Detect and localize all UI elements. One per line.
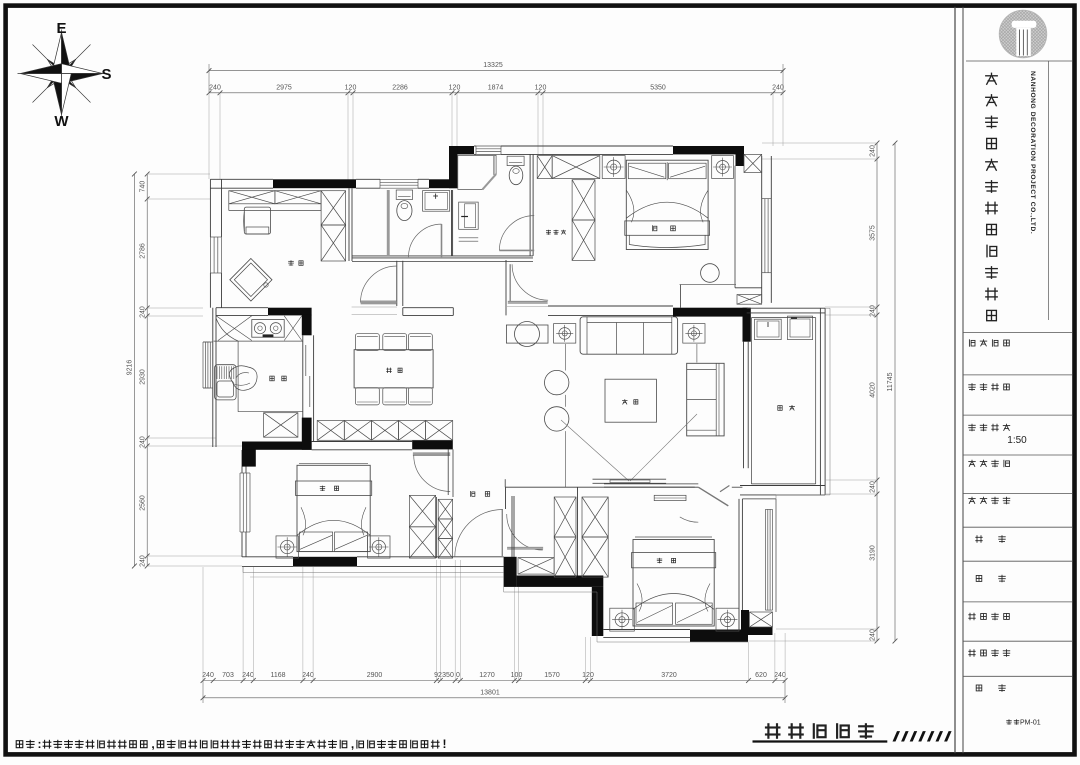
svg-text:3720: 3720: [661, 672, 677, 679]
svg-text:240: 240: [140, 436, 147, 448]
svg-text:350: 350: [442, 672, 454, 679]
svg-text:NANHONG DECORATION PROJECT CO.: NANHONG DECORATION PROJECT CO.,LTD.: [1029, 71, 1036, 234]
svg-text:2560: 2560: [140, 495, 147, 511]
svg-text:13325: 13325: [483, 62, 503, 69]
svg-text:2786: 2786: [140, 243, 147, 259]
svg-text:240: 240: [772, 85, 784, 92]
svg-text:PM-01: PM-01: [1020, 720, 1041, 727]
svg-text:240: 240: [870, 145, 877, 157]
svg-text:4020: 4020: [870, 382, 877, 398]
svg-text:2975: 2975: [276, 85, 292, 92]
svg-text:13801: 13801: [480, 690, 500, 697]
svg-text:E: E: [56, 20, 66, 37]
svg-text:,: ,: [151, 737, 154, 751]
svg-text:S: S: [101, 66, 111, 83]
svg-text:240: 240: [140, 555, 147, 567]
svg-text:120: 120: [345, 85, 357, 92]
svg-text:240: 240: [140, 306, 147, 318]
svg-text:3575: 3575: [870, 225, 877, 241]
svg-text:3190: 3190: [870, 545, 877, 561]
svg-text:W: W: [54, 113, 69, 130]
svg-text:0: 0: [456, 672, 460, 679]
svg-text:92: 92: [434, 672, 442, 679]
svg-text:740: 740: [140, 181, 147, 193]
svg-text:120: 120: [449, 85, 461, 92]
svg-text:240: 240: [774, 672, 786, 679]
svg-text::: :: [38, 737, 42, 751]
svg-text:240: 240: [870, 481, 877, 493]
svg-text:120: 120: [535, 85, 547, 92]
svg-text:240: 240: [302, 672, 314, 679]
svg-text:620: 620: [755, 672, 767, 679]
svg-text:240: 240: [202, 672, 214, 679]
svg-text:100: 100: [511, 672, 523, 679]
svg-text:240: 240: [209, 85, 221, 92]
svg-text:9216: 9216: [127, 360, 134, 376]
svg-text:2286: 2286: [392, 85, 408, 92]
svg-text:240: 240: [870, 629, 877, 641]
svg-text:1168: 1168: [270, 672, 285, 679]
svg-text:240: 240: [242, 672, 254, 679]
svg-text:,: ,: [351, 737, 354, 751]
svg-text:1:50: 1:50: [1007, 435, 1027, 446]
svg-text:5350: 5350: [650, 85, 666, 92]
svg-text:11745: 11745: [887, 372, 894, 391]
svg-text:1874: 1874: [488, 85, 504, 92]
svg-text:2930: 2930: [140, 369, 147, 385]
svg-text:120: 120: [582, 672, 594, 679]
svg-text:1570: 1570: [544, 672, 560, 679]
svg-text:!: !: [443, 737, 447, 751]
svg-text:2900: 2900: [367, 672, 383, 679]
svg-text:1270: 1270: [479, 672, 495, 679]
svg-text:703: 703: [222, 672, 234, 679]
